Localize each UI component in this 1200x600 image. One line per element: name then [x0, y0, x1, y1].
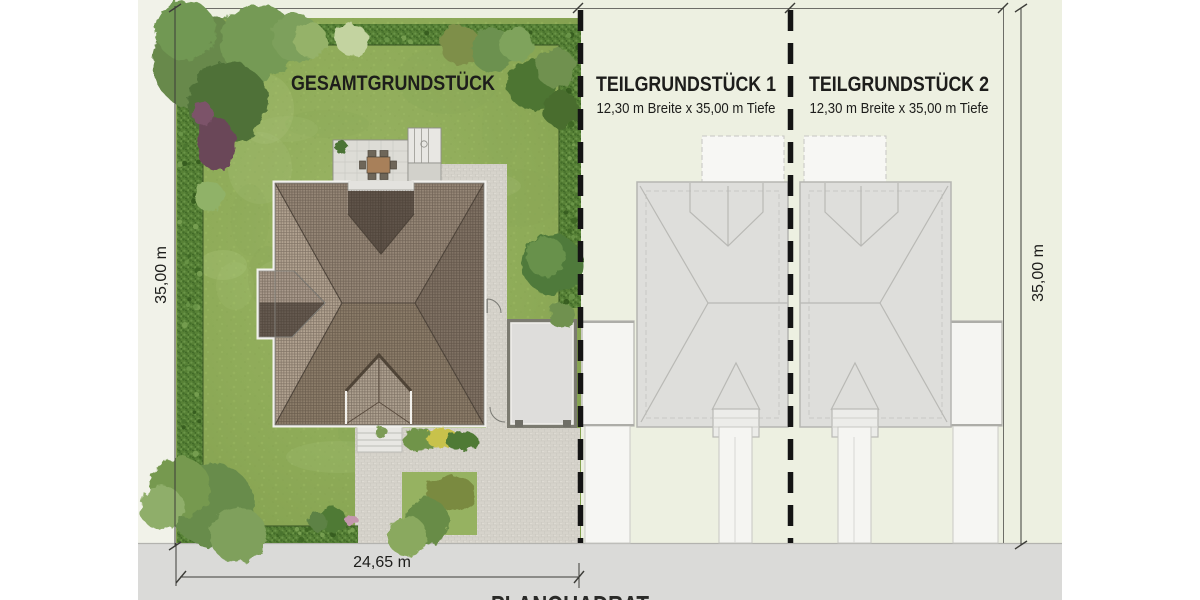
svg-text:TEILGRUNDSTÜCK 2: TEILGRUNDSTÜCK 2: [809, 73, 989, 96]
svg-text:TEILGRUNDSTÜCK 1: TEILGRUNDSTÜCK 1: [596, 73, 776, 96]
svg-text:PLANQUADRAT: PLANQUADRAT: [491, 590, 649, 600]
svg-text:35,00 m: 35,00 m: [1030, 244, 1047, 302]
svg-text:GESAMTGRUNDSTÜCK: GESAMTGRUNDSTÜCK: [291, 72, 495, 95]
svg-text:12,30 m Breite x 35,00 m Tiefe: 12,30 m Breite x 35,00 m Tiefe: [597, 100, 776, 117]
svg-text:12,30 m Breite x 35,00 m Tiefe: 12,30 m Breite x 35,00 m Tiefe: [810, 100, 989, 117]
svg-text:35,00 m: 35,00 m: [153, 246, 170, 304]
svg-text:24,65 m: 24,65 m: [353, 554, 411, 571]
